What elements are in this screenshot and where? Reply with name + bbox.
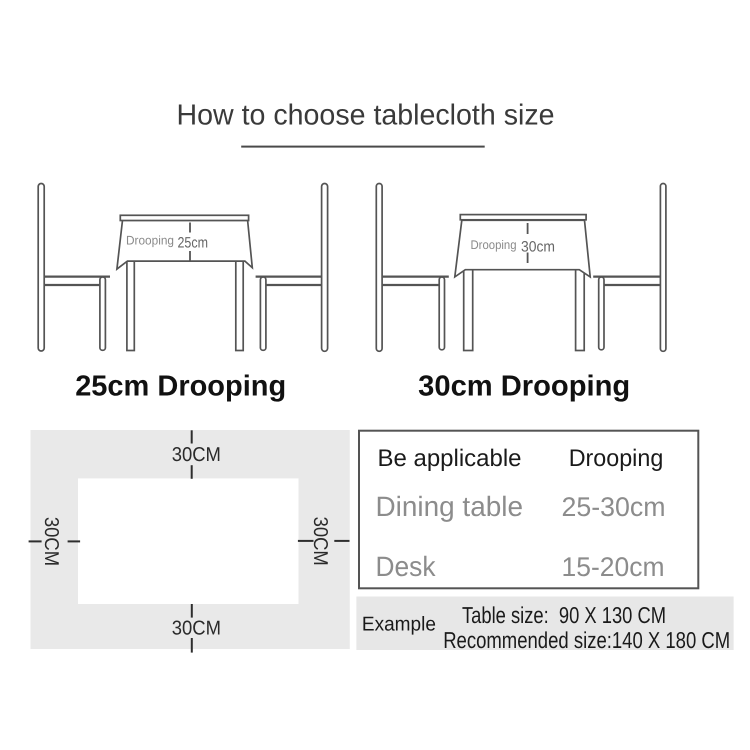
svg-text:Example: Example <box>362 614 436 636</box>
svg-text:30cm: 30cm <box>521 239 555 256</box>
svg-text:Be applicable: Be applicable <box>378 445 522 472</box>
svg-text:Dining table: Dining table <box>376 491 524 522</box>
svg-text:Desk: Desk <box>376 551 437 582</box>
svg-text:30CM: 30CM <box>172 617 221 639</box>
svg-text:30cm Drooping: 30cm Drooping <box>418 371 630 403</box>
svg-text:15-20cm: 15-20cm <box>562 552 665 582</box>
svg-text:Drooping: Drooping <box>471 238 517 252</box>
svg-text:25-30cm: 25-30cm <box>562 492 666 522</box>
svg-text:30CM: 30CM <box>309 517 331 566</box>
svg-text:Drooping: Drooping <box>569 445 664 472</box>
svg-text:How to choose tablecloth size: How to choose tablecloth size <box>177 100 555 132</box>
svg-text:25cm: 25cm <box>178 235 209 252</box>
svg-text:25cm Drooping: 25cm Drooping <box>75 371 286 403</box>
svg-text:Drooping: Drooping <box>126 234 174 248</box>
svg-text:Table size: 90 X 130 CM: Table size: 90 X 130 CM <box>462 602 666 628</box>
svg-text:Recommended size:140 X 180 CM: Recommended size:140 X 180 CM <box>443 627 730 653</box>
svg-text:30CM: 30CM <box>40 517 62 566</box>
svg-text:30CM: 30CM <box>172 444 221 466</box>
